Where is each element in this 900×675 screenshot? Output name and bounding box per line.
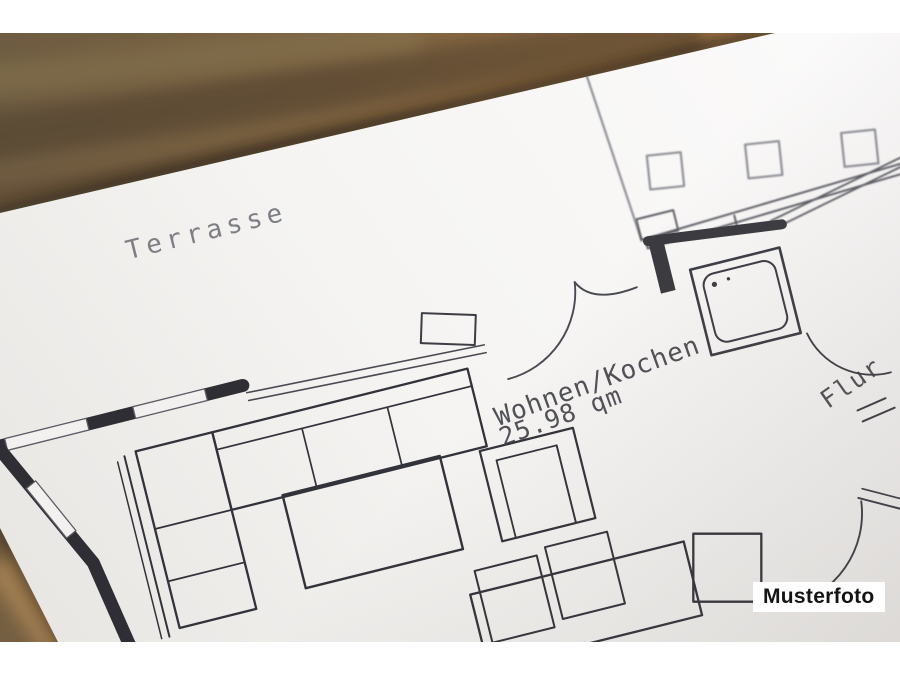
floor-plan-photo: Terrasse Wohnen/Kochen 25.98 qm Flur Mus…: [0, 0, 900, 675]
letterbox-top: [0, 0, 900, 33]
musterfoto-watermark: Musterfoto: [753, 582, 885, 612]
letterbox-bottom: [0, 642, 900, 675]
photo-scene: Terrasse Wohnen/Kochen 25.98 qm Flur: [0, 0, 900, 675]
